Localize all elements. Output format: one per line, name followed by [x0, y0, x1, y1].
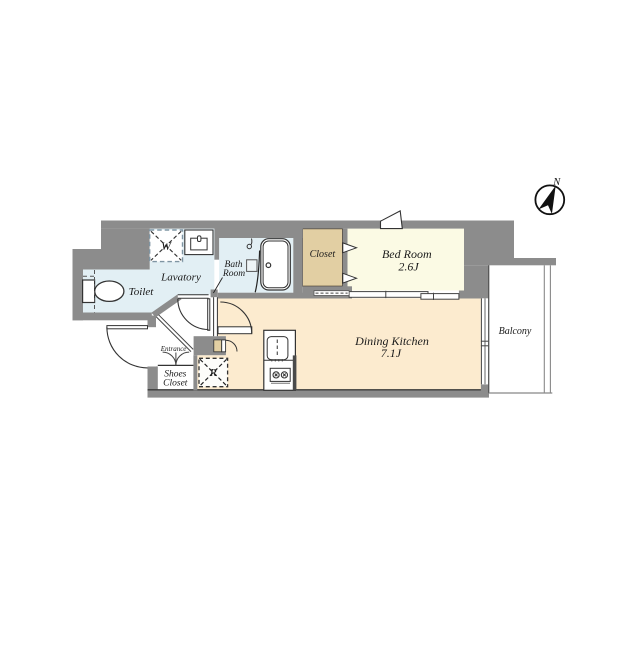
svg-text:Room: Room	[222, 269, 245, 279]
svg-text:2.6J: 2.6J	[398, 260, 419, 274]
svg-text:7.1J: 7.1J	[381, 346, 402, 360]
svg-text:R: R	[209, 367, 217, 379]
svg-text:Balcony: Balcony	[499, 326, 532, 337]
svg-text:Closet: Closet	[310, 249, 336, 260]
svg-text:Lavatory: Lavatory	[160, 272, 201, 284]
svg-text:Entrance: Entrance	[160, 345, 187, 353]
svg-text:W: W	[161, 241, 172, 253]
svg-text:Closet: Closet	[163, 379, 188, 389]
svg-text:N: N	[552, 177, 561, 188]
svg-text:Toilet: Toilet	[129, 286, 155, 298]
